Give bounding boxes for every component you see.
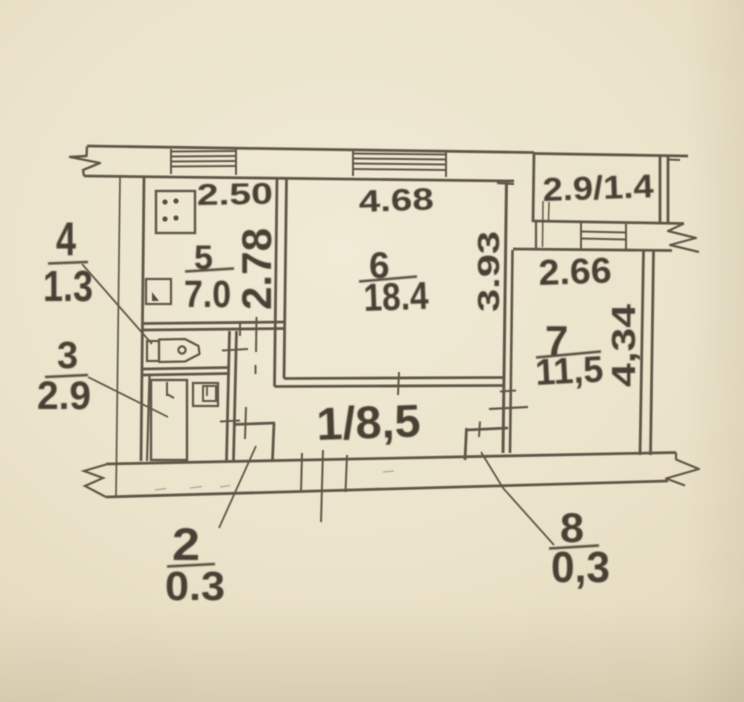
- svg-text:0,3: 0,3: [551, 543, 610, 592]
- svg-text:2.50: 2.50: [197, 178, 274, 212]
- svg-text:1.3: 1.3: [43, 262, 93, 311]
- svg-text:18.4: 18.4: [363, 275, 430, 320]
- svg-text:2.78: 2.78: [233, 228, 280, 310]
- svg-text:2.9: 2.9: [37, 374, 91, 418]
- svg-text:3: 3: [57, 335, 78, 377]
- svg-text:3.93: 3.93: [471, 231, 506, 312]
- svg-text:2.66: 2.66: [538, 249, 612, 293]
- svg-text:4,34: 4,34: [605, 303, 642, 387]
- svg-text:2.9/1.4: 2.9/1.4: [542, 167, 655, 208]
- svg-text:7.0: 7.0: [184, 274, 231, 316]
- svg-text:0.3: 0.3: [165, 563, 225, 609]
- svg-text:1/8,5: 1/8,5: [316, 394, 422, 450]
- svg-text:4.68: 4.68: [358, 181, 434, 219]
- svg-text:4: 4: [56, 212, 76, 265]
- svg-text:11,5: 11,5: [534, 348, 604, 393]
